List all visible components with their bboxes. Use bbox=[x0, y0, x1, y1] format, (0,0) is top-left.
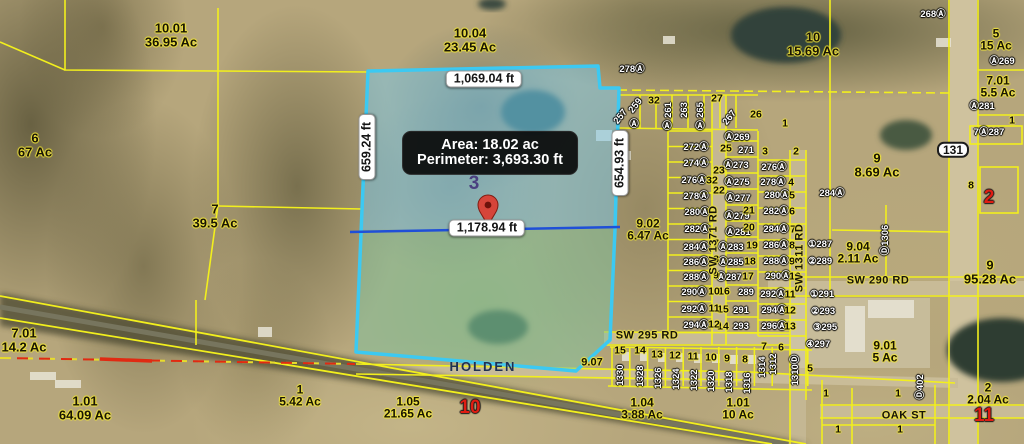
area-value: Area: 18.02 ac bbox=[417, 138, 563, 153]
lot-number-label: 19 bbox=[746, 241, 758, 252]
address-label: Ⓐ bbox=[695, 122, 705, 132]
selected-parcel-number: 3 bbox=[469, 174, 480, 194]
address-label: 268Ⓐ bbox=[920, 10, 945, 20]
address-label: Ⓐ287 bbox=[716, 273, 741, 283]
parcel-id: 9 bbox=[854, 151, 899, 165]
address-label: Ⓓ1306 bbox=[881, 225, 891, 256]
parcel-id-acreage-label: 9.015 Ac bbox=[873, 340, 898, 365]
address-label: Ⓐ281 bbox=[969, 102, 994, 112]
address-label: 284Ⓐ bbox=[683, 243, 708, 253]
parcel-id: 9.07 bbox=[581, 357, 602, 368]
address-label: 286Ⓐ bbox=[763, 241, 788, 251]
address-label: 1318 bbox=[725, 371, 735, 392]
lot-number-label: 8 bbox=[968, 181, 974, 192]
lot-number-label: 1 bbox=[823, 389, 829, 400]
parcel-id: 1.01 bbox=[59, 394, 111, 408]
parcel-id-acreage-label: 1.0110 Ac bbox=[722, 397, 754, 422]
measurement-top: 1,069.04 ft bbox=[446, 71, 522, 88]
lot-number-label: 5 bbox=[807, 364, 813, 375]
parcel-id-acreage-label: 22.04 Ac bbox=[967, 382, 1009, 407]
lot-number-label: 21 bbox=[743, 206, 755, 217]
address-label: 1330 bbox=[616, 364, 626, 385]
lot-number-label: 12 bbox=[669, 351, 681, 362]
lot-number-label: 13 bbox=[651, 350, 663, 361]
address-label: Ⓐ283 bbox=[718, 243, 743, 253]
lot-number-label: 1 bbox=[835, 425, 841, 436]
gis-map-canvas[interactable]: Area: 18.02 ac Perimeter: 3,693.30 ft 1,… bbox=[0, 0, 1024, 444]
lot-number-label: 6 bbox=[789, 207, 795, 218]
lot-number-label: 25 bbox=[720, 144, 732, 155]
address-label: 296Ⓐ bbox=[761, 322, 786, 332]
road-name-label: OAK ST bbox=[882, 410, 927, 421]
address-label: 276Ⓐ bbox=[761, 163, 786, 173]
address-label: 272Ⓐ bbox=[683, 143, 708, 153]
parcel-acreage: 5.5 Ac bbox=[981, 87, 1016, 99]
address-label: 292Ⓐ bbox=[681, 305, 706, 315]
parcel-acreage: 39.5 Ac bbox=[192, 216, 237, 230]
lot-number-label: 27 bbox=[711, 94, 723, 105]
address-label: 278Ⓐ bbox=[619, 65, 644, 75]
address-label: 1316 bbox=[743, 372, 753, 393]
address-label: 263 bbox=[680, 102, 690, 118]
overlay-red-label: 2 bbox=[984, 188, 995, 208]
parcel-id-acreage-label: 98.69 Ac bbox=[854, 151, 899, 178]
parcel-acreage: 3.88 Ac bbox=[621, 409, 663, 421]
address-label: ③295 bbox=[813, 323, 837, 333]
parcel-id-acreage-label: 667 Ac bbox=[18, 131, 52, 158]
city-label-holden: HOLDEN bbox=[450, 360, 517, 374]
address-label: 276Ⓐ bbox=[681, 176, 706, 186]
parcel-acreage: 67 Ac bbox=[18, 145, 52, 159]
lot-number-label: 13 bbox=[784, 322, 796, 333]
address-label: 261 bbox=[664, 102, 674, 118]
address-label: Ⓐ bbox=[662, 122, 672, 132]
address-label: Ⓓ402 bbox=[916, 374, 926, 399]
address-label: ④297 bbox=[806, 340, 830, 350]
lot-number-label: 15 bbox=[614, 346, 626, 357]
parcel-id: 7 bbox=[192, 202, 237, 216]
address-label: 265 bbox=[696, 102, 706, 118]
lot-number-label: 12 bbox=[708, 320, 720, 331]
address-label: ②289 bbox=[808, 257, 832, 267]
address-label: 1314 bbox=[758, 356, 768, 377]
lot-number-label: 1 bbox=[897, 425, 903, 436]
parcel-id-acreage-label: 515 Ac bbox=[980, 28, 1012, 53]
parcel-acreage: 8.69 Ac bbox=[854, 165, 899, 179]
lot-number-label: 22 bbox=[713, 186, 725, 197]
address-label: 290Ⓐ bbox=[681, 288, 706, 298]
parcel-acreage: 10 Ac bbox=[722, 409, 754, 421]
lot-number-label: 10 bbox=[708, 287, 720, 298]
lot-number-label: 4 bbox=[788, 178, 794, 189]
parcel-id: 7.01 bbox=[1, 326, 46, 340]
lot-number-label: 32 bbox=[706, 176, 718, 187]
lot-number-label: 8 bbox=[742, 355, 748, 366]
perimeter-value: Perimeter: 3,693.30 ft bbox=[417, 153, 563, 168]
address-label: 7Ⓐ287 bbox=[974, 128, 1005, 138]
parcel-id: 10 bbox=[787, 30, 839, 44]
parcel-acreage: 15.69 Ac bbox=[787, 44, 839, 58]
parcel-id-acreage-label: 1.0164.09 Ac bbox=[59, 394, 111, 421]
road-name-label: SW 1371 RD bbox=[708, 205, 719, 274]
parcel-acreage: 6.47 Ac bbox=[627, 230, 669, 242]
parcel-id-acreage-label: 10.0423.45 Ac bbox=[444, 26, 496, 53]
parcel-id-acreage-label: 9.026.47 Ac bbox=[627, 218, 669, 243]
lot-number-label: 26 bbox=[750, 110, 762, 121]
parcel-id: 10.04 bbox=[444, 26, 496, 40]
address-label: 282Ⓐ bbox=[684, 225, 709, 235]
address-label: 290Ⓐ bbox=[765, 272, 790, 282]
parcel-id-acreage-label: 1.043.88 Ac bbox=[621, 397, 663, 422]
parcel-acreage: 2.04 Ac bbox=[967, 394, 1009, 406]
measurement-bottom: 1,178.94 ft bbox=[449, 220, 525, 237]
area-tooltip: Area: 18.02 ac Perimeter: 3,693.30 ft bbox=[402, 131, 578, 175]
address-label: ①291 bbox=[810, 290, 834, 300]
overlay-red-label: 11 bbox=[974, 406, 994, 426]
lot-number-label: 10 bbox=[705, 353, 717, 364]
parcel-id-acreage-label: 1.0521.65 Ac bbox=[384, 396, 432, 421]
lot-number-label: 14 bbox=[634, 346, 646, 357]
parcel-id-acreage-label: 15.42 Ac bbox=[279, 384, 321, 409]
lot-number-label: 1 bbox=[895, 389, 901, 400]
parcel-acreage: 5 Ac bbox=[873, 352, 898, 364]
parcel-id: 9 bbox=[964, 258, 1016, 272]
parcel-id-acreage-label: 9.042.11 Ac bbox=[838, 241, 879, 266]
parcel-acreage: 36.95 Ac bbox=[145, 35, 197, 49]
lot-number-label: 7 bbox=[761, 342, 767, 353]
address-label: 289 bbox=[738, 288, 754, 298]
parcel-id-acreage-label: 7.015.5 Ac bbox=[981, 75, 1016, 100]
parcel-acreage: 64.09 Ac bbox=[59, 408, 111, 422]
address-label: 278Ⓐ bbox=[760, 178, 785, 188]
address-label: 1312 bbox=[769, 353, 779, 374]
parcel-acreage: 14.2 Ac bbox=[1, 340, 46, 354]
lot-number-label: 11 bbox=[708, 304, 719, 315]
lot-number-label: 32 bbox=[648, 96, 660, 107]
address-label: 1322 bbox=[690, 369, 700, 390]
address-label: 271 bbox=[738, 146, 754, 156]
parcel-id-acreage-label: 7.0114.2 Ac bbox=[1, 326, 46, 353]
address-label: 293 bbox=[733, 322, 749, 332]
address-label: 280Ⓐ bbox=[684, 208, 709, 218]
address-label: Ⓐ269 bbox=[724, 133, 749, 143]
lot-number-label: 3 bbox=[762, 147, 768, 158]
lot-number-label: 9 bbox=[724, 354, 730, 365]
road-name-label: SW 295 RD bbox=[616, 330, 679, 341]
address-label: 282Ⓐ bbox=[763, 207, 788, 217]
address-label: Ⓐ269 bbox=[989, 57, 1014, 67]
address-label: Ⓐ275 bbox=[724, 178, 749, 188]
lot-number-label: 6 bbox=[778, 343, 784, 354]
parcel-id-acreage-label: 995.28 Ac bbox=[964, 258, 1016, 285]
lot-number-label: 20 bbox=[743, 223, 755, 234]
selected-parcel-fill-south bbox=[356, 228, 615, 371]
parcel-acreage: 2.11 Ac bbox=[838, 253, 879, 265]
address-label: 1320 bbox=[707, 370, 717, 391]
address-label: 1310Ⓓ bbox=[791, 355, 801, 386]
address-label: 278Ⓐ bbox=[683, 192, 708, 202]
parcel-acreage: 95.28 Ac bbox=[964, 272, 1016, 286]
parcel-acreage: 21.65 Ac bbox=[384, 408, 432, 420]
measurement-right: 654.93 ft bbox=[612, 130, 629, 196]
address-label: 280Ⓐ bbox=[764, 191, 789, 201]
lot-number-label: 5 bbox=[789, 191, 795, 202]
lot-number-label: 12 bbox=[784, 306, 796, 317]
address-label: ②293 bbox=[811, 307, 835, 317]
measurement-left: 659.24 ft bbox=[359, 114, 376, 180]
address-label: 274Ⓐ bbox=[683, 159, 708, 169]
parcel-id-acreage-label: 10.0136.95 Ac bbox=[145, 21, 197, 48]
lot-number-label: 1 bbox=[1009, 116, 1015, 127]
address-label: Ⓐ277 bbox=[725, 194, 750, 204]
lot-number-label: 2 bbox=[793, 147, 799, 158]
overlay-red-label: 10 bbox=[459, 398, 480, 418]
parcel-acreage: 23.45 Ac bbox=[444, 40, 496, 54]
address-label: 288Ⓐ bbox=[683, 273, 708, 283]
parcel-id-acreage-label: 9.07 bbox=[581, 357, 602, 368]
parcel-id-acreage-label: 1015.69 Ac bbox=[787, 30, 839, 57]
address-label: 292Ⓐ bbox=[760, 290, 785, 300]
parcel-id-acreage-label: 739.5 Ac bbox=[192, 202, 237, 229]
address-label: Ⓐ273 bbox=[723, 161, 748, 171]
address-label: 288Ⓐ bbox=[763, 257, 788, 267]
road-name-label: SW 1311 RD bbox=[794, 224, 805, 293]
road-name-label: SW 290 RD bbox=[847, 275, 910, 286]
lot-number-label: 1 bbox=[782, 119, 788, 130]
address-label: 1326 bbox=[654, 367, 664, 388]
address-label: 284Ⓐ bbox=[819, 189, 844, 199]
parcel-id: 10.01 bbox=[145, 21, 197, 35]
lot-number-label: 11 bbox=[687, 352, 698, 363]
address-label: ①287 bbox=[808, 240, 832, 250]
address-label: 286Ⓐ bbox=[683, 258, 708, 268]
address-label: 294Ⓐ bbox=[761, 306, 786, 316]
address-label: 1324 bbox=[672, 368, 682, 389]
parcel-acreage: 15 Ac bbox=[980, 40, 1012, 52]
lot-number-label: 18 bbox=[744, 257, 756, 268]
address-label: 1328 bbox=[636, 365, 646, 386]
parcel-acreage: 5.42 Ac bbox=[279, 396, 321, 408]
parcel-id: 6 bbox=[18, 131, 52, 145]
lot-number-label: 17 bbox=[742, 272, 754, 283]
address-label: 284Ⓐ bbox=[763, 225, 788, 235]
route-131-shield: 131 bbox=[937, 142, 969, 158]
address-label: Ⓐ285 bbox=[718, 258, 743, 268]
address-label: 294Ⓐ bbox=[683, 321, 708, 331]
address-label: Ⓐ bbox=[629, 120, 639, 130]
address-label: 291 bbox=[733, 306, 749, 316]
